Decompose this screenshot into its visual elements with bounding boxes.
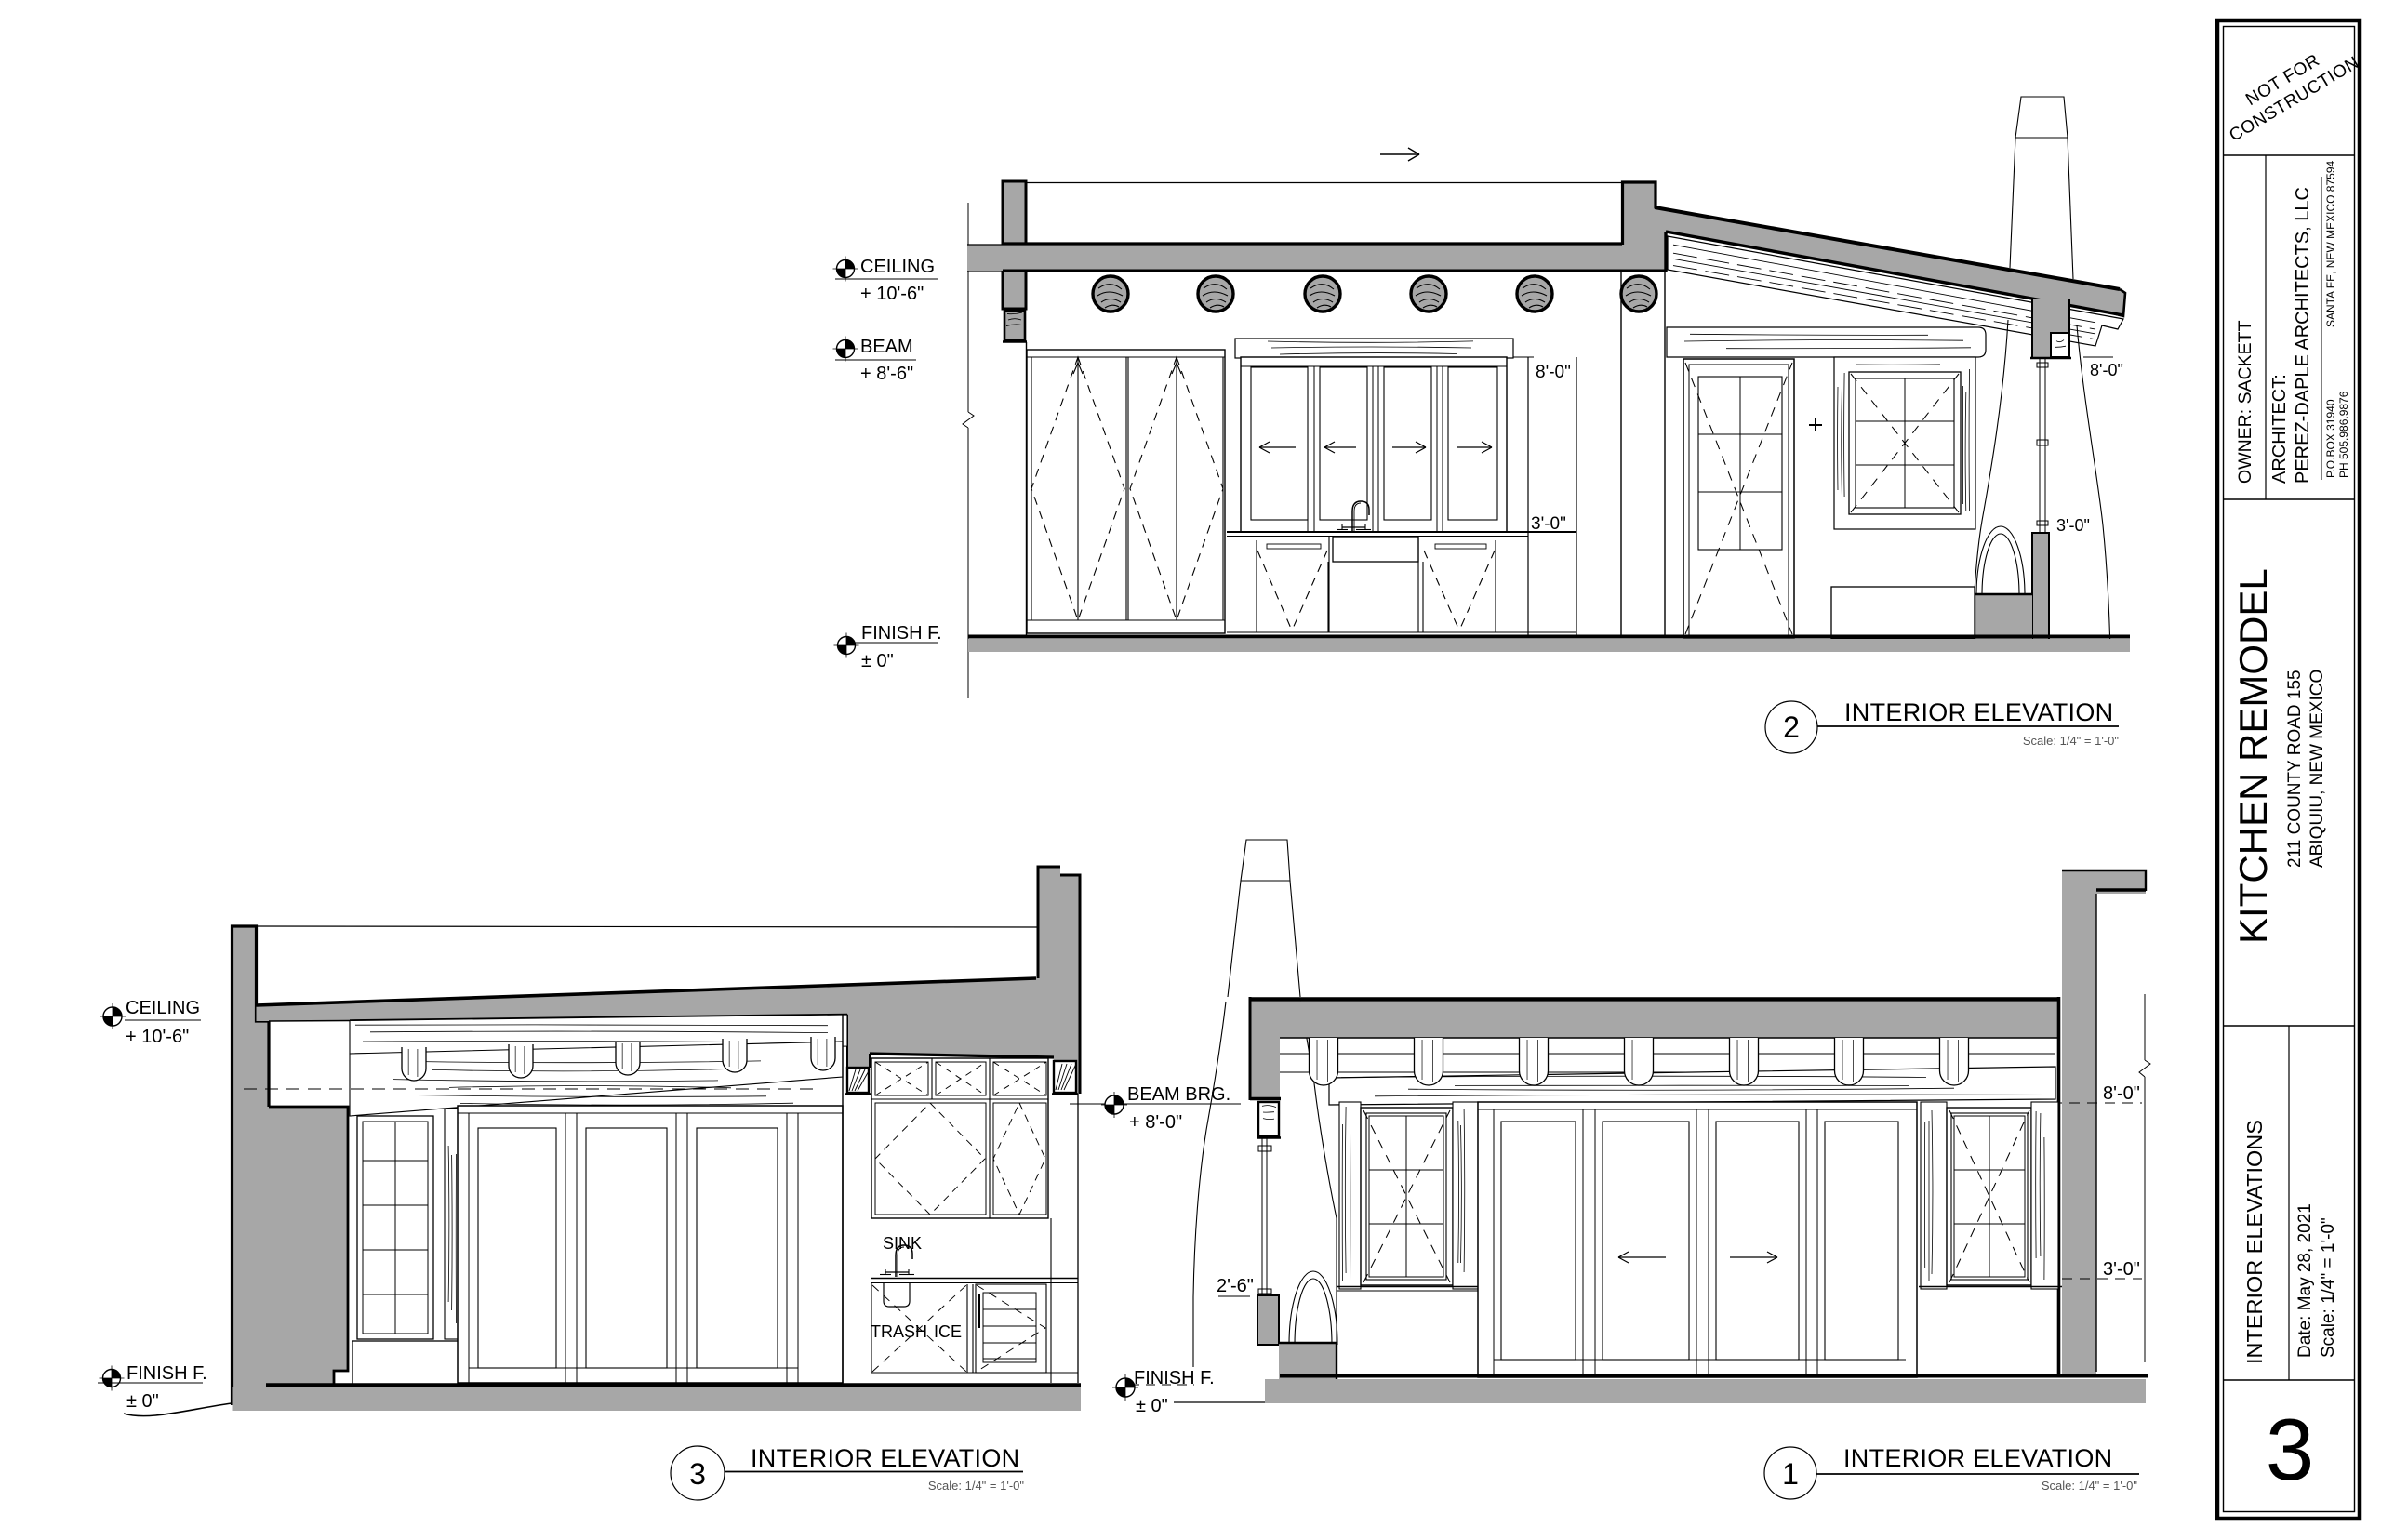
svg-text:FINISH F.: FINISH F. [126, 1363, 207, 1384]
svg-text:8'-0": 8'-0" [2090, 361, 2123, 379]
svg-text:PEREZ-DAPLE ARCHITECTS, LLC: PEREZ-DAPLE ARCHITECTS, LLC [2293, 187, 2313, 484]
svg-text:SINK: SINK [883, 1234, 922, 1253]
svg-text:FINISH F.: FINISH F. [1134, 1368, 1215, 1388]
svg-text:OWNER: SACKETT: OWNER: SACKETT [2235, 320, 2255, 484]
svg-text:BEAM: BEAM [860, 337, 913, 357]
svg-text:+ 8'-6": + 8'-6" [860, 364, 913, 384]
svg-text:INTERIOR ELEVATION: INTERIOR ELEVATION [1844, 698, 2113, 726]
svg-text:Scale: 1/4" = 1'-0": Scale: 1/4" = 1'-0" [928, 1479, 1025, 1493]
svg-text:8'-0": 8'-0" [1536, 363, 1571, 382]
svg-text:INTERIOR ELEVATION: INTERIOR ELEVATION [751, 1444, 1019, 1472]
svg-text:Date: May 28, 2021: Date: May 28, 2021 [2295, 1203, 2315, 1358]
svg-text:CEILING: CEILING [860, 257, 935, 277]
svg-text:+ 10'-6": + 10'-6" [860, 284, 924, 304]
svg-text:211 COUNTY ROAD 155: 211 COUNTY ROAD 155 [2285, 670, 2305, 868]
svg-text:8'-0": 8'-0" [2103, 1083, 2140, 1104]
svg-text:2: 2 [1783, 710, 1800, 744]
svg-text:BEAM BRG.: BEAM BRG. [1127, 1084, 1230, 1105]
svg-text:ICE: ICE [934, 1322, 962, 1341]
svg-text:SANTA FE, NEW MEXICO 87594: SANTA FE, NEW MEXICO 87594 [2324, 161, 2337, 327]
svg-text:± 0": ± 0" [1136, 1396, 1168, 1416]
svg-text:Scale: 1/4" = 1'-0": Scale: 1/4" = 1'-0" [2023, 734, 2120, 748]
svg-text:TRASH: TRASH [871, 1322, 927, 1341]
svg-text:2'-6": 2'-6" [1217, 1276, 1254, 1296]
svg-text:3'-0": 3'-0" [2056, 516, 2090, 535]
svg-text:ABIQUIU, NEW MEXICO: ABIQUIU, NEW MEXICO [2308, 670, 2327, 868]
svg-text:CEILING: CEILING [126, 998, 200, 1018]
svg-text:ARCHITECT:: ARCHITECT: [2269, 374, 2290, 484]
svg-text:PH 505.986.9876: PH 505.986.9876 [2337, 391, 2350, 478]
svg-text:3: 3 [689, 1457, 706, 1491]
svg-text:FINISH F.: FINISH F. [861, 623, 942, 644]
svg-text:+ 10'-6": + 10'-6" [126, 1027, 189, 1047]
svg-text:+ 8'-0": + 8'-0" [1129, 1112, 1182, 1133]
svg-text:KITCHEN REMODEL: KITCHEN REMODEL [2231, 568, 2275, 944]
svg-text:Scale: 1/4" = 1'-0": Scale: 1/4" = 1'-0" [2042, 1479, 2138, 1493]
svg-text:Scale: 1/4" = 1'-0": Scale: 1/4" = 1'-0" [2319, 1217, 2338, 1358]
svg-text:P.O.BOX 31940: P.O.BOX 31940 [2324, 399, 2337, 478]
svg-text:± 0": ± 0" [861, 651, 894, 671]
svg-text:3'-0": 3'-0" [2103, 1259, 2140, 1280]
svg-text:3'-0": 3'-0" [1531, 514, 1566, 534]
svg-text:± 0": ± 0" [126, 1391, 159, 1412]
svg-text:INTERIOR ELEVATION: INTERIOR ELEVATION [1843, 1444, 2112, 1472]
svg-text:3: 3 [2266, 1401, 2314, 1498]
svg-text:1: 1 [1782, 1457, 1799, 1491]
svg-text:INTERIOR ELEVATIONS: INTERIOR ELEVATIONS [2242, 1120, 2267, 1364]
